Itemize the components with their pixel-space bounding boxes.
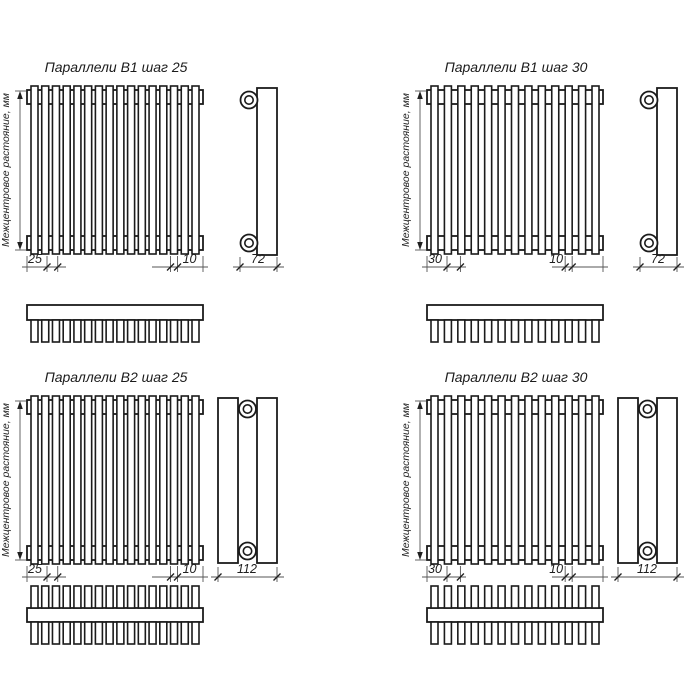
step-dimension-value: 25 — [27, 562, 42, 576]
tube-dimension-value: 10 — [549, 562, 563, 576]
diagram-title: Параллели В2 шаг 30 — [445, 369, 588, 385]
axis-label: Межцентровое растояние, мм — [0, 403, 12, 557]
front-view-dimensions: 2510 — [22, 252, 208, 272]
tube-dimension-value: 10 — [183, 252, 197, 266]
plan-view — [27, 586, 203, 644]
diagram-parallels-b2-step-25: Параллели В2 шаг 25Межцентровое растояни… — [0, 369, 284, 644]
center-distance-dimension: Межцентровое растояние, мм — [0, 91, 26, 250]
front-view-dimensions: 3010 — [422, 252, 608, 272]
diagram-title: Параллели В1 шаг 30 — [445, 59, 588, 75]
diagram-parallels-b1-step-25: Параллели В1 шаг 25Межцентровое растояни… — [0, 59, 284, 342]
step-dimension-value: 30 — [428, 252, 442, 266]
step-dimension-value: 25 — [27, 252, 42, 266]
plan-view — [427, 586, 603, 644]
front-view — [427, 396, 603, 564]
front-view — [27, 396, 203, 564]
diagram-parallels-b2-step-30: Параллели В2 шаг 30Межцентровое растояни… — [400, 369, 684, 644]
side-view: 72 — [233, 88, 284, 272]
plan-view — [427, 305, 603, 342]
front-view — [427, 86, 603, 254]
diagram-title: Параллели В2 шаг 25 — [45, 369, 188, 385]
diagram-parallels-b1-step-30: Параллели В1 шаг 30Межцентровое растояни… — [400, 59, 684, 342]
axis-label: Межцентровое растояние, мм — [400, 403, 412, 557]
side-view: 112 — [211, 398, 284, 582]
depth-dimension-value: 112 — [237, 562, 257, 576]
diagram-title: Параллели В1 шаг 25 — [45, 59, 188, 75]
center-distance-dimension: Межцентровое растояние, мм — [0, 401, 26, 560]
center-distance-dimension: Межцентровое растояние, мм — [400, 91, 426, 250]
plan-view — [27, 305, 203, 342]
radiator-drawing-sheet: Параллели В1 шаг 25Межцентровое растояни… — [0, 0, 700, 700]
depth-dimension-value: 112 — [637, 562, 657, 576]
technical-drawing-canvas: Параллели В1 шаг 25Межцентровое растояни… — [0, 0, 700, 700]
front-view-dimensions: 3010 — [422, 562, 608, 582]
axis-label: Межцентровое растояние, мм — [0, 93, 12, 247]
center-distance-dimension: Межцентровое растояние, мм — [400, 401, 426, 560]
tube-dimension-value: 10 — [183, 562, 197, 576]
step-dimension-value: 30 — [428, 562, 442, 576]
front-view-dimensions: 2510 — [22, 562, 208, 582]
depth-dimension-value: 72 — [251, 252, 265, 266]
side-view: 112 — [611, 398, 684, 582]
depth-dimension-value: 72 — [651, 252, 665, 266]
tube-dimension-value: 10 — [549, 252, 563, 266]
side-view: 72 — [633, 88, 684, 272]
axis-label: Межцентровое растояние, мм — [400, 93, 412, 247]
front-view — [27, 86, 203, 254]
